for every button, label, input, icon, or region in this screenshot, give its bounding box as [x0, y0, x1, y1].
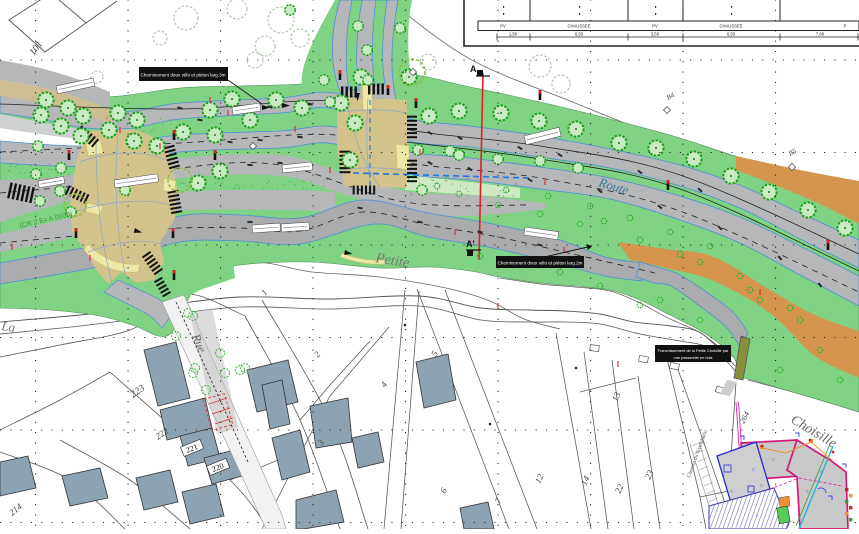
svg-text:6,50: 6,50 — [727, 32, 736, 37]
svg-text:CHAUSSEE: CHAUSSEE — [719, 24, 742, 29]
svg-text:P: P — [844, 24, 847, 29]
svg-text:6,50: 6,50 — [575, 32, 584, 37]
svg-text:3,50: 3,50 — [651, 32, 660, 37]
svg-text:Cheminement doux vélo et piéto: Cheminement doux vélo et piéton larg.2m — [497, 261, 582, 266]
svg-text:Cheminement doux vélo et piéto: Cheminement doux vélo et piéton larg.3m — [140, 73, 225, 78]
svg-text:CHAUSSEE: CHAUSSEE — [567, 24, 590, 29]
svg-text:PV: PV — [500, 24, 506, 29]
svg-text:A': A' — [466, 239, 475, 249]
svg-text:Franchissement de la Petite Ch: Franchissement de la Petite Choisille pa… — [658, 348, 729, 353]
svg-text:A: A — [470, 64, 477, 74]
svg-text:La: La — [0, 318, 17, 335]
svg-text:une passerelle en bois: une passerelle en bois — [674, 355, 713, 360]
svg-text:1,50: 1,50 — [509, 32, 518, 37]
svg-text:7,60: 7,60 — [816, 32, 825, 37]
svg-text:PV: PV — [652, 24, 658, 29]
